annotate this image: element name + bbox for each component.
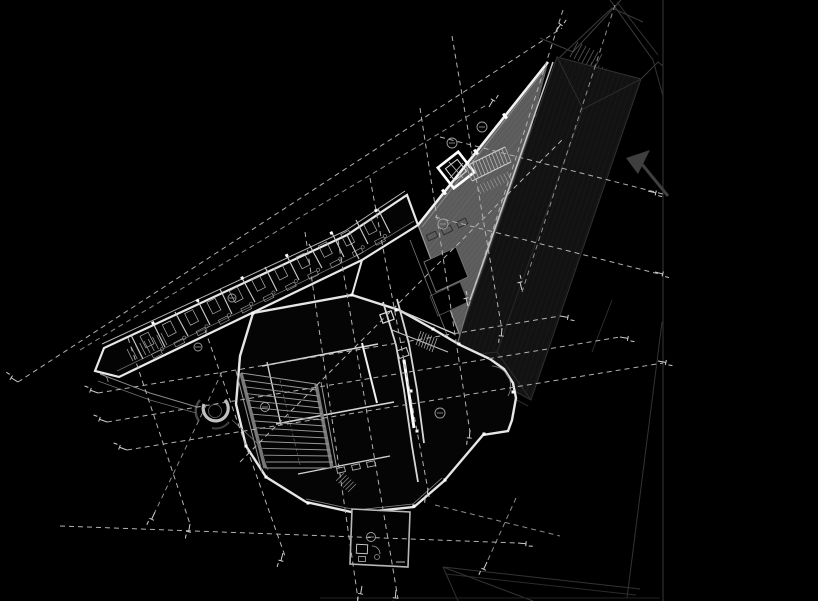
floor-plan-canvas: [0, 0, 818, 601]
annex-room: [350, 509, 410, 567]
architectural-floor-plan: [0, 0, 818, 601]
plan-background: [0, 0, 818, 601]
